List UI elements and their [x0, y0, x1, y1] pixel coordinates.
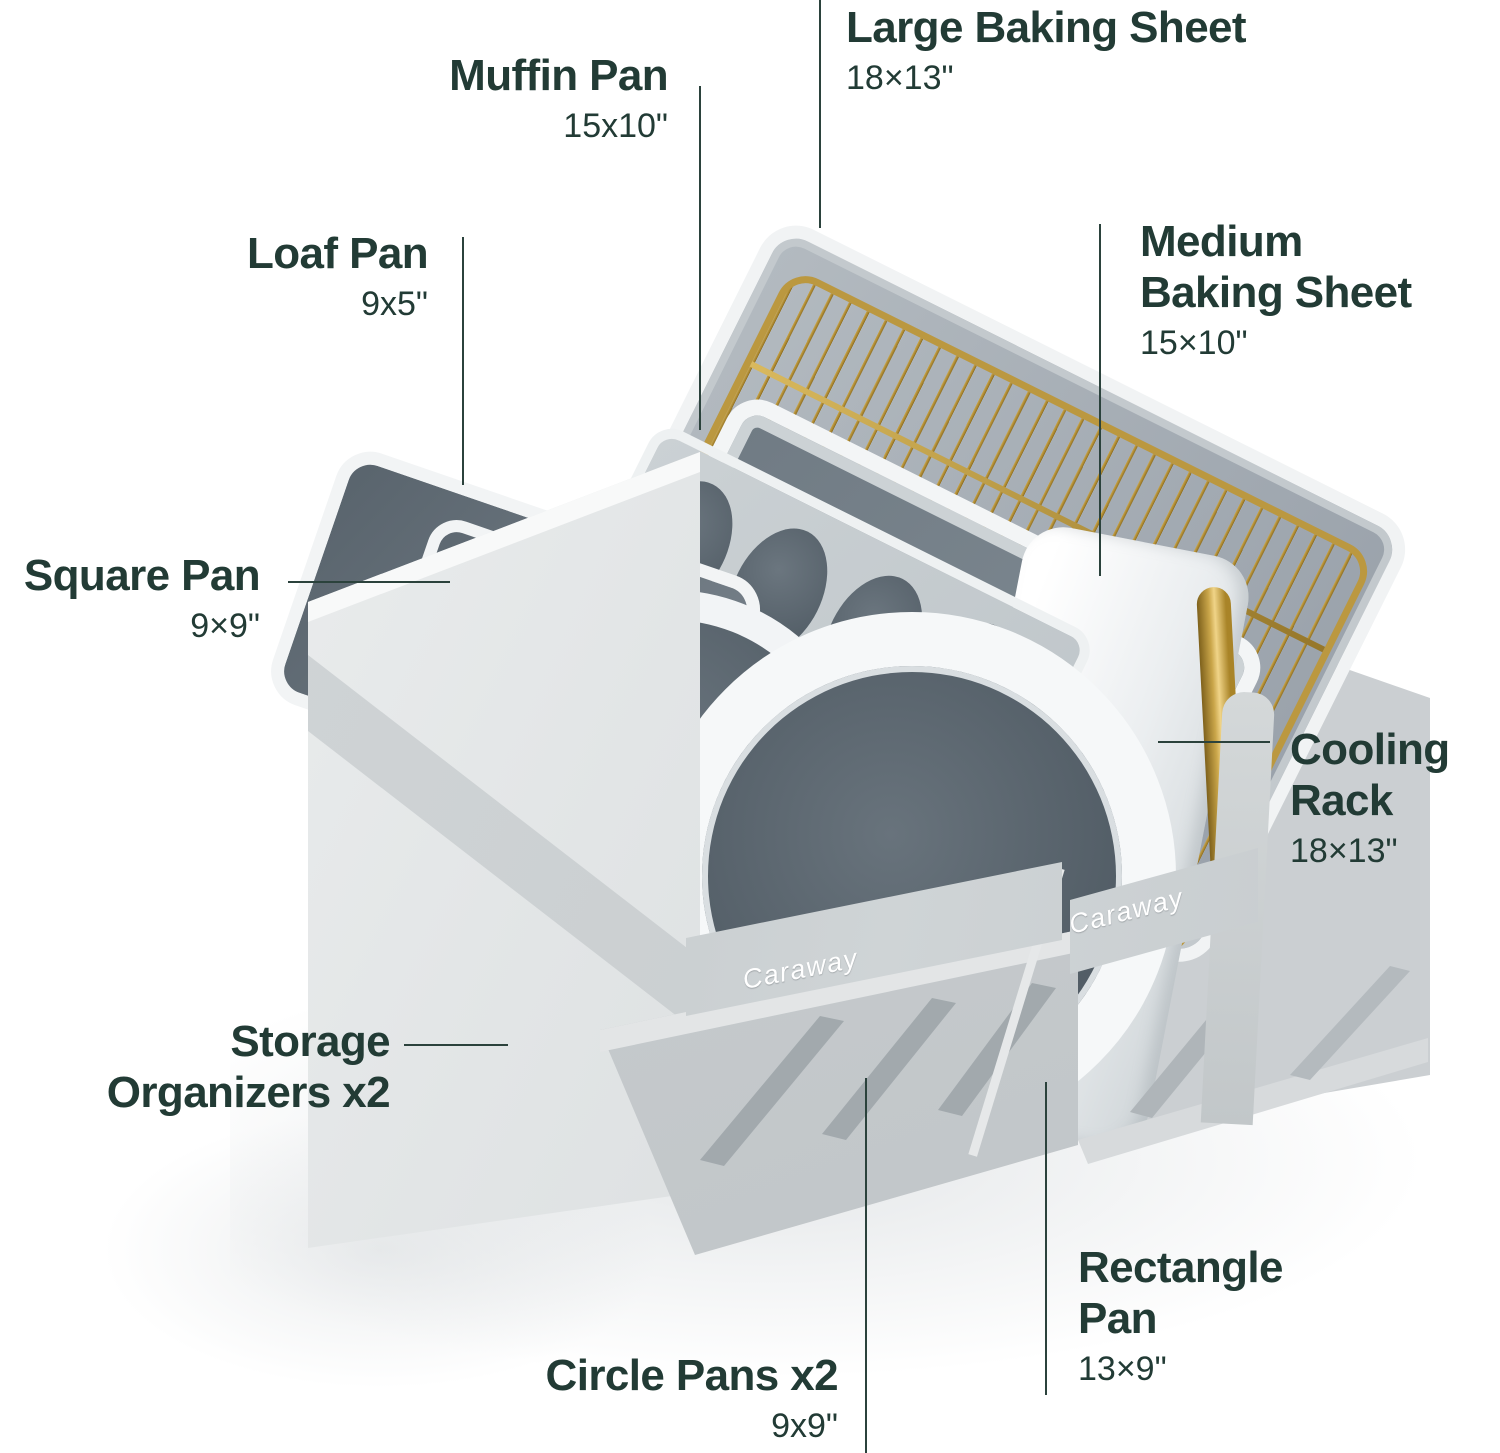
label-circle-pans: Circle Pans x2 9x9" [546, 1350, 838, 1445]
label-medium-baking-sheet: Medium Baking Sheet 15×10" [1140, 216, 1412, 362]
label-title: Muffin Pan [449, 50, 668, 101]
label-size: 9x5" [247, 286, 428, 323]
leader-line-circle-pans [865, 1078, 867, 1453]
label-square-pan: Square Pan 9×9" [24, 550, 260, 645]
label-large-baking-sheet: Large Baking Sheet 18×13" [846, 2, 1246, 97]
label-title-line1: Medium [1140, 216, 1412, 267]
leader-line-storage-organizers [404, 1044, 508, 1046]
label-title-line2: Baking Sheet [1140, 267, 1412, 318]
label-loaf-pan: Loaf Pan 9x5" [247, 228, 428, 323]
leader-line-medium-baking-sheet [1099, 224, 1101, 576]
label-title-line2: Pan [1078, 1293, 1283, 1344]
label-title: Circle Pans x2 [546, 1350, 838, 1401]
label-title-line1: Cooling [1290, 724, 1450, 775]
leader-line-muffin-pan [699, 86, 701, 430]
leader-line-rectangle-pan [1045, 1082, 1047, 1395]
leader-line-cooling-rack [1158, 741, 1270, 743]
label-size: 9x9" [546, 1408, 838, 1445]
leader-line-loaf-pan [462, 237, 464, 485]
label-size: 18×13" [846, 60, 1246, 97]
label-title-line2: Organizers x2 [107, 1067, 390, 1118]
label-title-line2: Rack [1290, 775, 1450, 826]
label-title-line1: Storage [107, 1016, 390, 1067]
label-size: 15×10" [1140, 325, 1412, 362]
label-title: Loaf Pan [247, 228, 428, 279]
label-title: Large Baking Sheet [846, 2, 1246, 53]
product-diagram: Caraway Caraway Large Baking Sheet 18×13… [0, 0, 1500, 1453]
label-size: 18×13" [1290, 833, 1450, 870]
label-cooling-rack: Cooling Rack 18×13" [1290, 724, 1450, 870]
label-size: 13×9" [1078, 1351, 1283, 1388]
label-muffin-pan: Muffin Pan 15x10" [449, 50, 668, 145]
label-size: 15x10" [449, 108, 668, 145]
label-rectangle-pan: Rectangle Pan 13×9" [1078, 1242, 1283, 1388]
label-title: Square Pan [24, 550, 260, 601]
label-size: 9×9" [24, 608, 260, 645]
leader-line-square-pan [288, 581, 450, 583]
leader-line-large-baking-sheet [819, 0, 821, 228]
label-storage-organizers: Storage Organizers x2 [107, 1016, 390, 1118]
label-title-line1: Rectangle [1078, 1242, 1283, 1293]
